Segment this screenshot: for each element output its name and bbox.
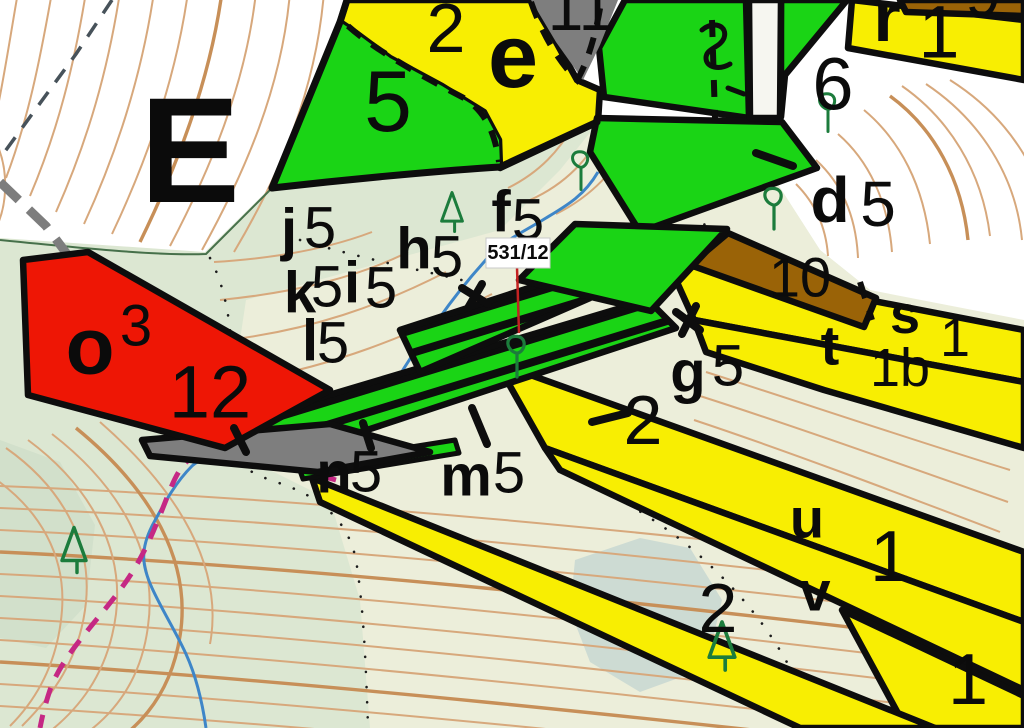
label-stand-5-green: 5 [364, 54, 412, 150]
label-stand-o-12: 12 [169, 351, 251, 434]
label-stand-m-5: 5 [493, 441, 525, 506]
label-parcel-n: n [316, 441, 351, 506]
label-stand-tr-9: 9 [965, 0, 1001, 30]
label-stand-2-mid: 2 [624, 381, 663, 459]
label-stand-2-low: 2 [699, 569, 738, 647]
label-parcel-i: i [344, 251, 360, 316]
label-stand-h-5: 5 [431, 225, 463, 290]
reference-label-text: 531/12 [487, 242, 548, 264]
label-parcel-v: v [799, 560, 830, 623]
white-strip-parcel [749, 0, 781, 118]
label-stand-d-5: 5 [860, 168, 896, 240]
label-parcel-r: r [873, 0, 900, 56]
label-parcel-t: t [821, 314, 840, 377]
forest-map-canvas: E 2 e 11 5 r 1 9 6 f 5 h 5 j 5 k 5 i 5 l… [0, 0, 1024, 728]
label-parcel-f: f [491, 180, 511, 245]
label-parcel-l: l [302, 309, 318, 374]
label-stand-n-5: 5 [350, 440, 382, 505]
label-stand-r-1: 1 [918, 0, 959, 74]
label-parcel-o: o [66, 302, 115, 391]
label-parcel-d: d [810, 164, 849, 236]
label-parcel-s: s [890, 285, 920, 345]
label-stand-j-5: 5 [304, 196, 336, 261]
label-stand-l-5: 5 [317, 311, 349, 376]
label-stand-6: 6 [812, 43, 853, 126]
label-parcel-u: u [790, 487, 824, 550]
label-stand-t-1b: 1b [870, 338, 930, 398]
label-stand-11: 11 [548, 0, 614, 44]
label-stand-1-low: 1 [948, 640, 988, 720]
label-stand-u-1: 1 [870, 517, 910, 597]
label-parcel-e: e [488, 7, 538, 107]
label-stand-s-1: 1 [940, 308, 970, 368]
label-stand-i-5: 5 [365, 256, 397, 321]
parcel-green-upper-left [599, 0, 749, 118]
label-stand-10: 10 [769, 246, 831, 309]
label-parcel-j: j [280, 198, 297, 263]
label-stand-2-top: 2 [427, 0, 466, 67]
label-stand-o-3: 3 [120, 294, 152, 359]
label-parcel-g: g [670, 340, 705, 405]
label-stand-g-5: 5 [712, 334, 744, 399]
label-parcel-m: m [440, 444, 492, 509]
label-parcel-h: h [396, 217, 431, 282]
forest-map-viewport: E 2 e 11 5 r 1 9 6 f 5 h 5 j 5 k 5 i 5 l… [0, 0, 1024, 728]
label-compartment-E: E [140, 66, 240, 234]
